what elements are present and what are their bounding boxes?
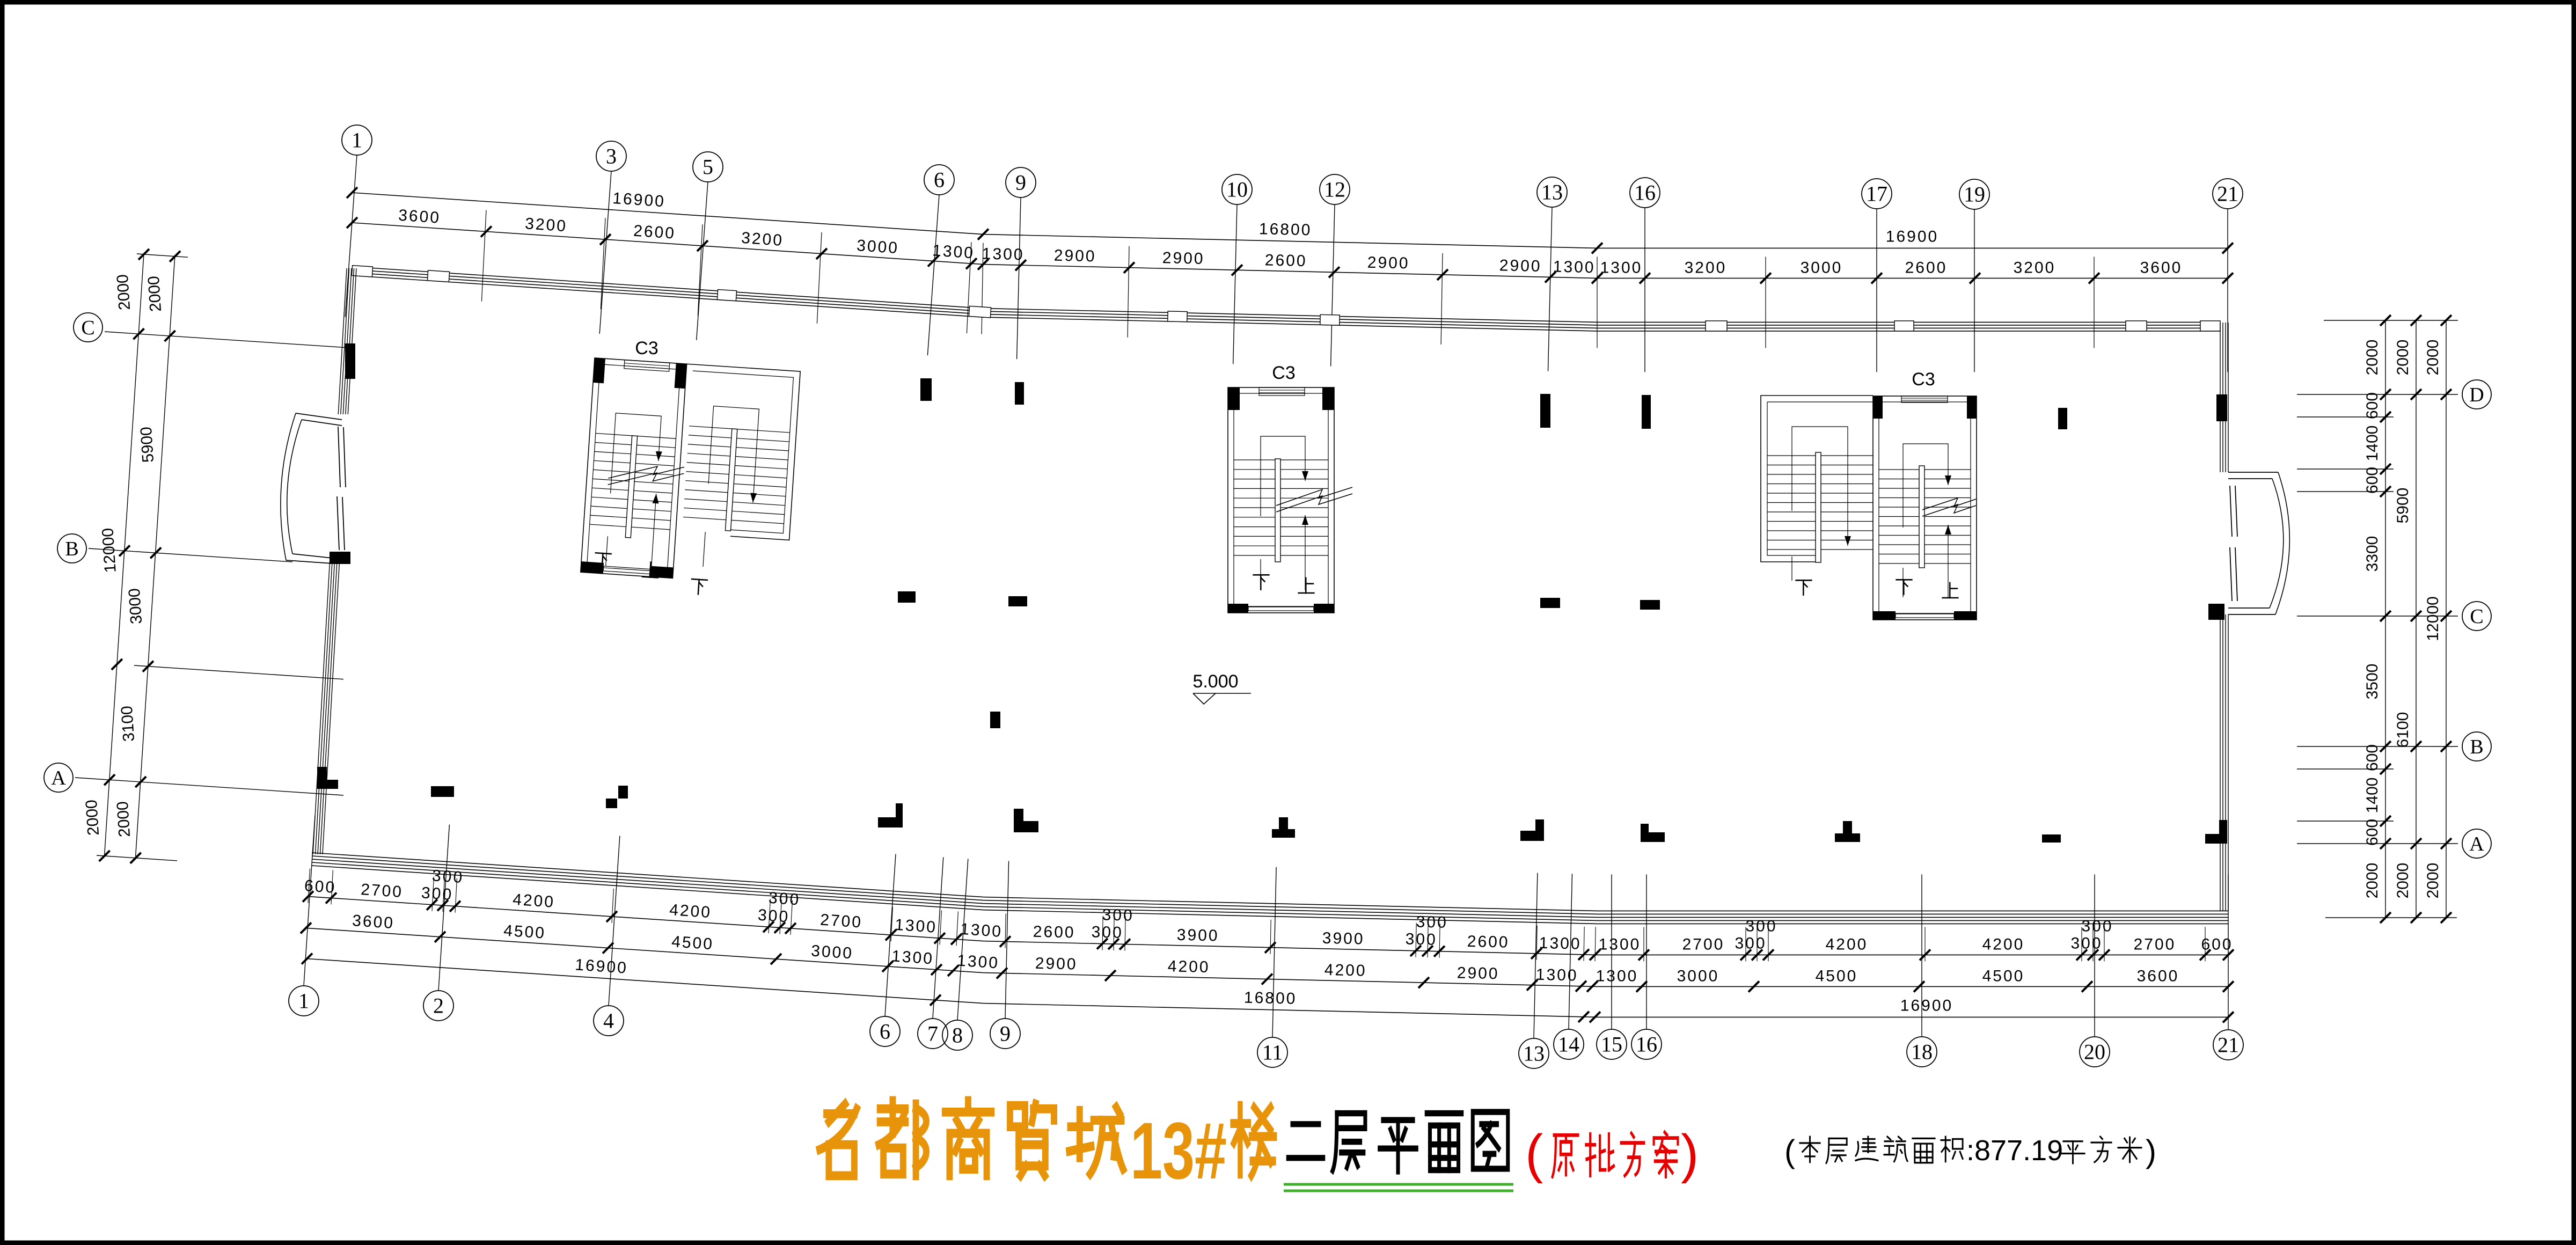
svg-text:3000: 3000	[1801, 259, 1843, 276]
svg-text:2600: 2600	[633, 222, 676, 243]
svg-text:12: 12	[1324, 178, 1345, 202]
svg-text:300: 300	[1735, 934, 1766, 952]
svg-text:C: C	[81, 317, 94, 339]
svg-text:2600: 2600	[1033, 923, 1075, 942]
svg-text:300: 300	[1405, 931, 1437, 949]
svg-text:300: 300	[1416, 913, 1448, 932]
svg-text:1300: 1300	[1596, 967, 1638, 985]
svg-text:2600: 2600	[1467, 933, 1509, 951]
svg-text:2600: 2600	[1905, 259, 1948, 276]
svg-text:13: 13	[1541, 180, 1563, 204]
svg-text:): )	[2146, 1133, 2156, 1169]
svg-text:): )	[1681, 1124, 1699, 1184]
svg-text:4200: 4200	[1324, 961, 1366, 980]
svg-text:D: D	[2469, 384, 2484, 406]
svg-text:2900: 2900	[1162, 249, 1204, 268]
svg-text:2900: 2900	[1499, 257, 1541, 275]
svg-text:16900: 16900	[574, 956, 628, 977]
svg-text:2000: 2000	[2424, 340, 2442, 376]
svg-text:2900: 2900	[1457, 964, 1499, 983]
svg-text:3200: 3200	[741, 229, 784, 250]
svg-text:1300: 1300	[956, 951, 1000, 972]
svg-text:3600: 3600	[398, 207, 441, 227]
svg-text:2600: 2600	[1264, 251, 1307, 270]
svg-text:3200: 3200	[1685, 259, 1727, 276]
svg-text:2700: 2700	[360, 881, 404, 901]
svg-text:4500: 4500	[671, 933, 714, 953]
svg-text:300: 300	[421, 884, 453, 904]
svg-text:1400: 1400	[2363, 426, 2381, 462]
svg-text:2000: 2000	[2394, 340, 2412, 376]
svg-text:12000: 12000	[2424, 596, 2442, 641]
svg-text:1300: 1300	[891, 947, 934, 968]
svg-text:3600: 3600	[2137, 967, 2179, 985]
svg-text:1300: 1300	[1535, 966, 1578, 985]
svg-text:4200: 4200	[1167, 957, 1210, 976]
svg-text:4200: 4200	[1982, 935, 2025, 953]
svg-text:21: 21	[2218, 1033, 2239, 1057]
svg-text:3000: 3000	[856, 237, 899, 257]
svg-text:1300: 1300	[1539, 934, 1581, 953]
svg-text:1300: 1300	[932, 241, 975, 262]
svg-text:9: 9	[1015, 171, 1026, 195]
svg-text::877.19: :877.19	[1966, 1134, 2063, 1167]
svg-text:2900: 2900	[1367, 254, 1409, 273]
svg-text:2000: 2000	[2363, 340, 2381, 376]
svg-text:1300: 1300	[894, 916, 938, 936]
svg-text:1300: 1300	[1599, 935, 1641, 953]
svg-text:6100: 6100	[2394, 712, 2412, 748]
svg-text:16800: 16800	[1259, 220, 1312, 239]
svg-text:2000: 2000	[2363, 863, 2381, 899]
svg-text:2000: 2000	[83, 799, 103, 836]
svg-text:1300: 1300	[1553, 258, 1595, 277]
svg-text:17: 17	[1866, 182, 1887, 206]
svg-text:A: A	[51, 767, 66, 789]
svg-text:11: 11	[1262, 1041, 1283, 1065]
svg-text:2000: 2000	[145, 275, 165, 312]
svg-text:3000: 3000	[126, 588, 145, 625]
svg-text:3500: 3500	[2363, 664, 2381, 700]
svg-text:5.000: 5.000	[1192, 671, 1238, 692]
svg-text:2000: 2000	[114, 274, 134, 311]
svg-text:300: 300	[1102, 906, 1134, 924]
svg-text:6: 6	[880, 1020, 890, 1044]
svg-text:4500: 4500	[1982, 967, 2025, 985]
svg-text:C3: C3	[1912, 369, 1935, 390]
svg-text:2000: 2000	[2394, 863, 2412, 899]
svg-text:16: 16	[1636, 1032, 1657, 1057]
svg-text:600: 600	[2363, 392, 2381, 419]
svg-text:600: 600	[2363, 744, 2381, 771]
svg-text:1400: 1400	[2363, 778, 2381, 814]
svg-text:2: 2	[433, 994, 444, 1018]
svg-text:C: C	[2470, 605, 2483, 628]
svg-text:18: 18	[1911, 1040, 1933, 1064]
svg-text:9: 9	[1000, 1022, 1011, 1046]
svg-text:3300: 3300	[2363, 536, 2381, 572]
svg-text:300: 300	[1091, 923, 1123, 941]
svg-text:12000: 12000	[99, 528, 119, 573]
svg-text:3600: 3600	[352, 912, 395, 932]
svg-text:3000: 3000	[810, 942, 854, 962]
svg-text:1300: 1300	[982, 245, 1024, 264]
svg-text:20: 20	[2084, 1040, 2105, 1064]
svg-text:2900: 2900	[1035, 955, 1077, 973]
svg-text:300: 300	[757, 906, 790, 926]
svg-text:C3: C3	[1272, 363, 1295, 383]
svg-text:8: 8	[952, 1023, 963, 1048]
svg-text:3900: 3900	[1176, 926, 1219, 945]
svg-text:3900: 3900	[1322, 929, 1364, 948]
svg-text:2700: 2700	[1682, 935, 1725, 953]
svg-text:B: B	[65, 538, 78, 560]
svg-text:4500: 4500	[1816, 967, 1858, 985]
svg-text:16900: 16900	[612, 189, 665, 210]
svg-text:4200: 4200	[1826, 935, 1868, 953]
svg-text:14: 14	[1558, 1032, 1579, 1057]
svg-text:15: 15	[1601, 1032, 1622, 1057]
svg-text:21: 21	[2217, 182, 2238, 206]
svg-text:300: 300	[1745, 917, 1777, 935]
svg-text:B: B	[2470, 736, 2483, 758]
svg-text:1300: 1300	[1600, 259, 1643, 276]
svg-text:2900: 2900	[1053, 247, 1096, 266]
svg-text:5900: 5900	[137, 426, 157, 463]
svg-text:1300: 1300	[960, 920, 1003, 941]
svg-text:16800: 16800	[1244, 989, 1297, 1008]
svg-text:5900: 5900	[2394, 488, 2412, 524]
svg-text:4500: 4500	[503, 922, 546, 942]
svg-text:300: 300	[768, 889, 801, 909]
svg-text:3000: 3000	[1677, 967, 1719, 985]
svg-text:300: 300	[431, 867, 464, 887]
svg-text:600: 600	[2363, 467, 2381, 494]
svg-text:(: (	[1784, 1133, 1795, 1169]
svg-text:6: 6	[934, 168, 945, 192]
svg-text:A: A	[2469, 833, 2484, 855]
svg-text:4: 4	[603, 1009, 614, 1033]
svg-text:10: 10	[1226, 178, 1248, 202]
svg-text:600: 600	[2363, 819, 2381, 846]
svg-text:300: 300	[2081, 917, 2113, 935]
svg-text:1: 1	[352, 128, 362, 152]
svg-text:3600: 3600	[2140, 259, 2183, 276]
svg-text:16900: 16900	[1886, 228, 1938, 245]
svg-text:3100: 3100	[118, 705, 138, 742]
svg-text:16: 16	[1634, 181, 1656, 205]
svg-text:3200: 3200	[524, 215, 568, 235]
svg-text:300: 300	[2070, 934, 2102, 952]
svg-text:3: 3	[606, 144, 617, 169]
svg-text:2700: 2700	[2134, 935, 2176, 953]
svg-text:7: 7	[927, 1022, 938, 1046]
svg-text:13: 13	[1523, 1042, 1545, 1066]
svg-text:2000: 2000	[2424, 863, 2442, 899]
svg-text:2700: 2700	[819, 911, 863, 932]
svg-text:4200: 4200	[512, 891, 555, 911]
svg-text:16900: 16900	[1900, 997, 1953, 1014]
svg-text:5: 5	[702, 155, 713, 179]
svg-text:1: 1	[298, 989, 309, 1013]
svg-text:(: (	[1525, 1124, 1543, 1184]
svg-text:2000: 2000	[114, 801, 134, 838]
svg-text:3200: 3200	[2014, 259, 2056, 276]
svg-text:13#: 13#	[1130, 1105, 1227, 1196]
svg-text:4200: 4200	[669, 901, 712, 921]
svg-text:C3: C3	[635, 338, 658, 358]
svg-text:19: 19	[1964, 182, 1985, 207]
